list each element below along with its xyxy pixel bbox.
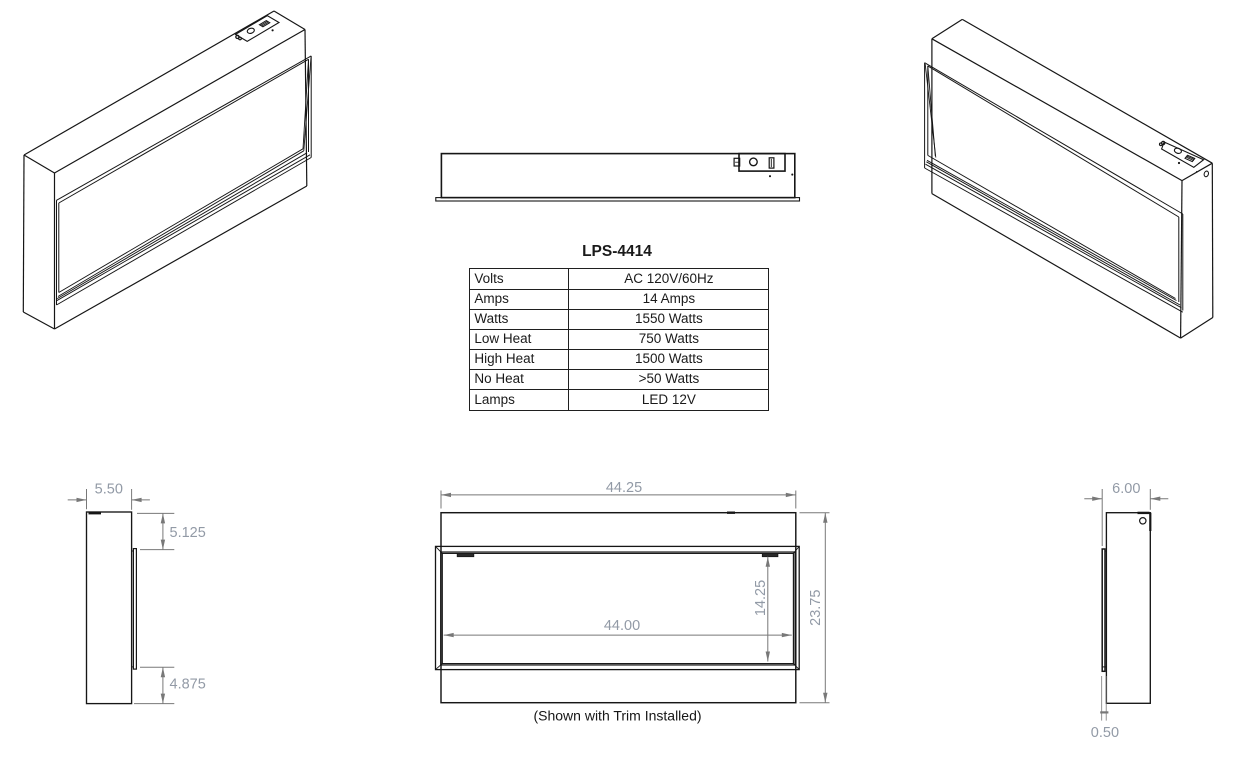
svg-text:44.00: 44.00 bbox=[604, 618, 640, 634]
svg-text:0.50: 0.50 bbox=[1091, 725, 1119, 741]
svg-text:5.50: 5.50 bbox=[95, 481, 123, 497]
svg-text:4.875: 4.875 bbox=[170, 677, 206, 693]
svg-text:14.25: 14.25 bbox=[753, 580, 769, 616]
svg-text:23.75: 23.75 bbox=[808, 590, 824, 626]
svg-text:(Shown with Trim Installed): (Shown with Trim Installed) bbox=[533, 708, 701, 724]
svg-text:6.00: 6.00 bbox=[1112, 481, 1140, 497]
svg-text:44.25: 44.25 bbox=[606, 480, 642, 496]
svg-text:5.125: 5.125 bbox=[170, 525, 206, 541]
